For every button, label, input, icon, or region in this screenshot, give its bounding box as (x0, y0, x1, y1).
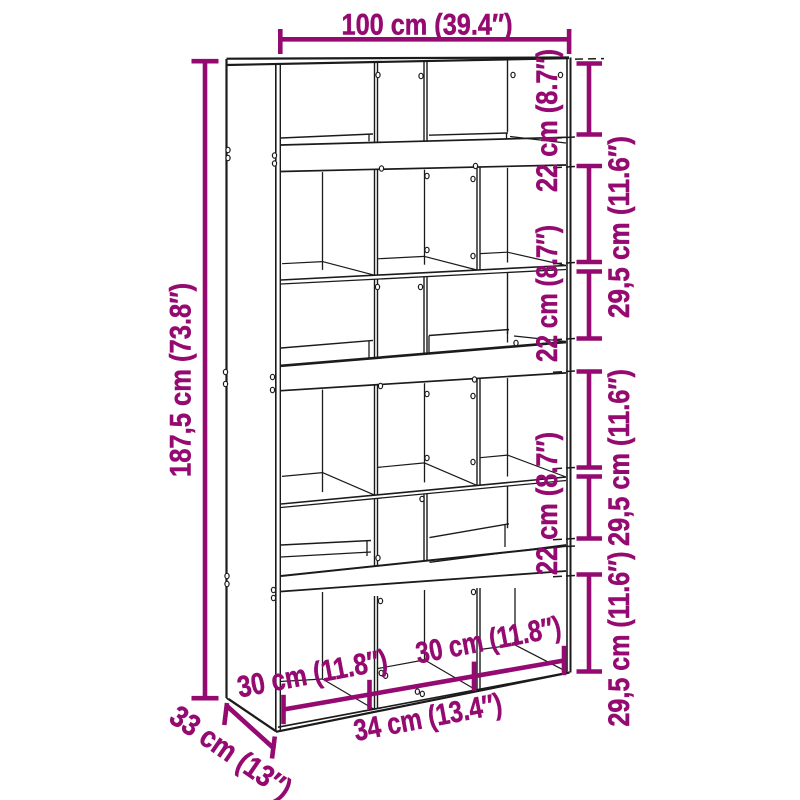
svg-text:187,5 cm (73.8″): 187,5 cm (73.8″) (165, 283, 198, 477)
svg-text:22 cm (8.7″): 22 cm (8.7″) (531, 432, 564, 575)
svg-text:29,5 cm (11.6″): 29,5 cm (11.6″) (603, 369, 636, 546)
svg-text:100 cm (39.4″): 100 cm (39.4″) (342, 9, 513, 42)
svg-text:29,5 cm (11.6″): 29,5 cm (11.6″) (603, 552, 636, 727)
svg-text:22 cm (8.7″): 22 cm (8.7″) (531, 49, 564, 192)
svg-text:29,5 cm (11.6″): 29,5 cm (11.6″) (603, 136, 636, 318)
svg-text:22 cm (8.7″): 22 cm (8.7″) (531, 225, 564, 362)
